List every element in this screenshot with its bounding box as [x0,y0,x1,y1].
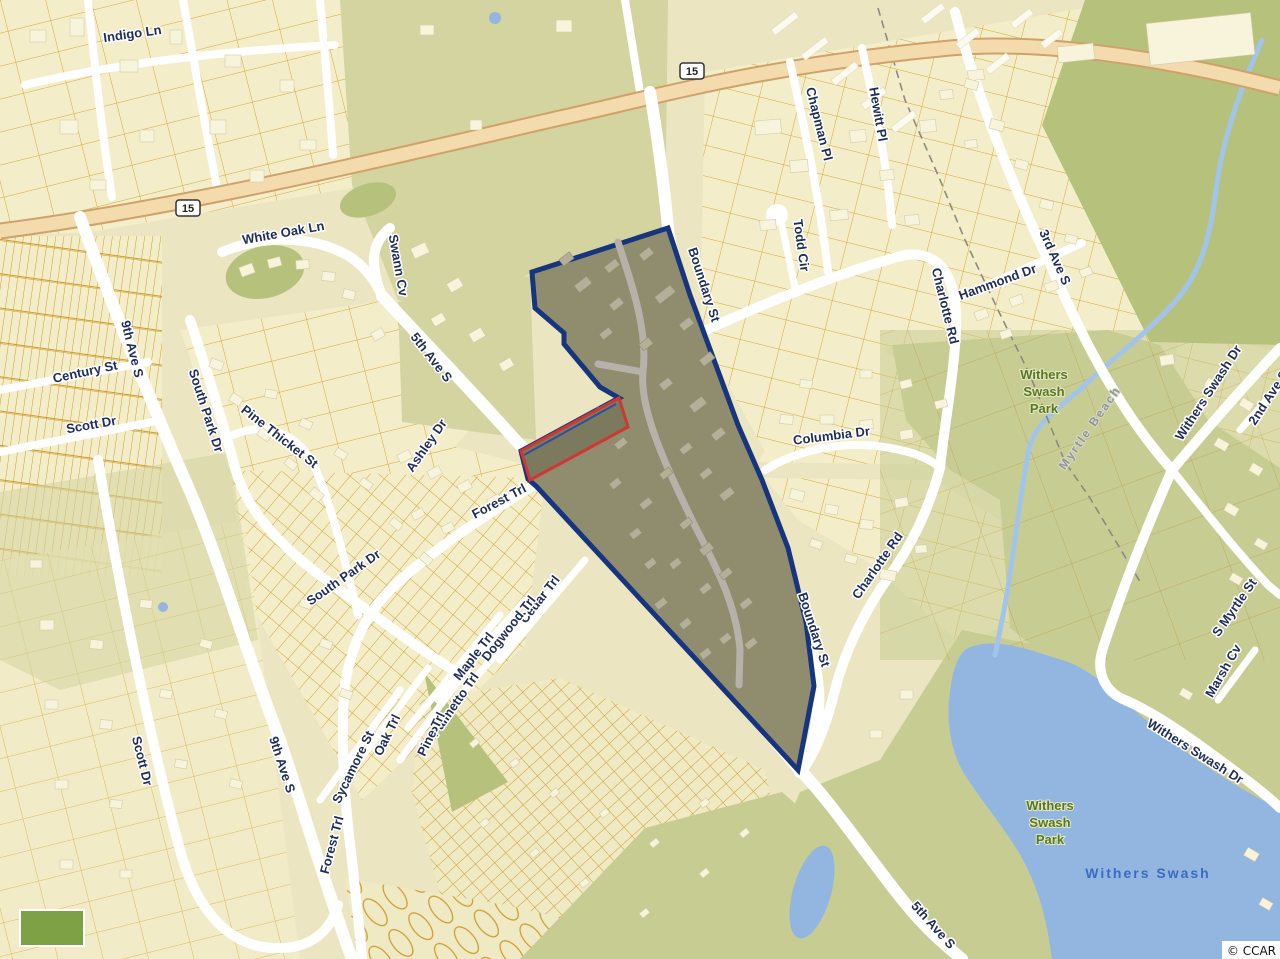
building-footprint [780,414,794,424]
building-footprint [55,780,68,789]
building-footprint [280,80,294,92]
building-footprint [45,700,58,709]
soccer-field [20,910,84,946]
building-footprint [174,759,187,769]
building-footprint [30,560,42,568]
building-footprint [322,271,336,281]
building-footprint [90,180,106,190]
building-footprint [824,504,838,515]
building-footprint [830,209,849,221]
building-footprint [968,69,985,81]
building-footprint [250,170,264,182]
building-footprint [70,18,84,36]
building-footprint [296,259,310,269]
attribution: © CCAR [1222,941,1280,959]
park-label-line1: Withers [1020,367,1068,382]
building-footprint [60,860,73,869]
building-footprint [860,519,874,529]
park-label-line3: Park [1030,401,1059,416]
building-footprint [420,25,434,35]
building-footprint [120,870,132,878]
building-footprint [940,89,954,99]
building-footprint [800,379,813,388]
route-15-shield: 15 [680,63,704,79]
building-footprint [159,689,172,699]
building-footprint [915,544,928,553]
building-footprint [1159,354,1175,366]
building-footprint [965,139,978,148]
building-footprint [140,130,154,142]
building-footprint [760,219,777,230]
building-footprint [556,20,572,32]
building-footprint [225,55,241,67]
route-15-shield: 15 [176,200,200,216]
building-footprint [264,389,277,399]
building-footprint [110,799,123,808]
park-label-line2: Swash [1023,384,1064,399]
route-15-number: 15 [686,66,698,78]
building-footprint [60,120,78,134]
building-footprint [30,30,46,42]
building-footprint [210,120,226,134]
park-label-line1: Withers [1026,798,1074,813]
building-footprint [140,599,153,608]
building-footprint [90,639,104,649]
building-footprint [899,429,913,440]
building-footprint [100,719,113,729]
park-label-line2: Swash [1029,815,1070,830]
copyright-watermark: © CCAR [1227,944,1276,958]
map-canvas[interactable]: 15 15 Indigo Ln White Oak Ln Swann Cv 5t… [0,0,1280,959]
building-footprint [894,497,908,508]
building-footprint [900,690,913,699]
building-footprint [120,60,138,72]
building-footprint [860,370,872,378]
route-15-number: 15 [182,203,194,215]
building-footprint [40,620,54,630]
building-footprint [880,169,895,180]
withers-swash-label: Withers Swash [1085,865,1210,881]
building-footprint [300,140,316,150]
building-footprint [905,214,920,225]
building-footprint [470,120,482,130]
building-footprint [1057,43,1094,63]
building-footprint [790,159,809,173]
building-footprint [820,415,834,424]
map-viewport[interactable]: 15 15 Indigo Ln White Oak Ln Swann Cv 5t… [0,0,1280,959]
building-footprint [754,119,781,135]
building-footprint [920,119,937,132]
building-footprint [850,129,867,142]
building-footprint [170,30,182,44]
park-label-line3: Park [1036,832,1065,847]
building-footprint [870,730,882,738]
